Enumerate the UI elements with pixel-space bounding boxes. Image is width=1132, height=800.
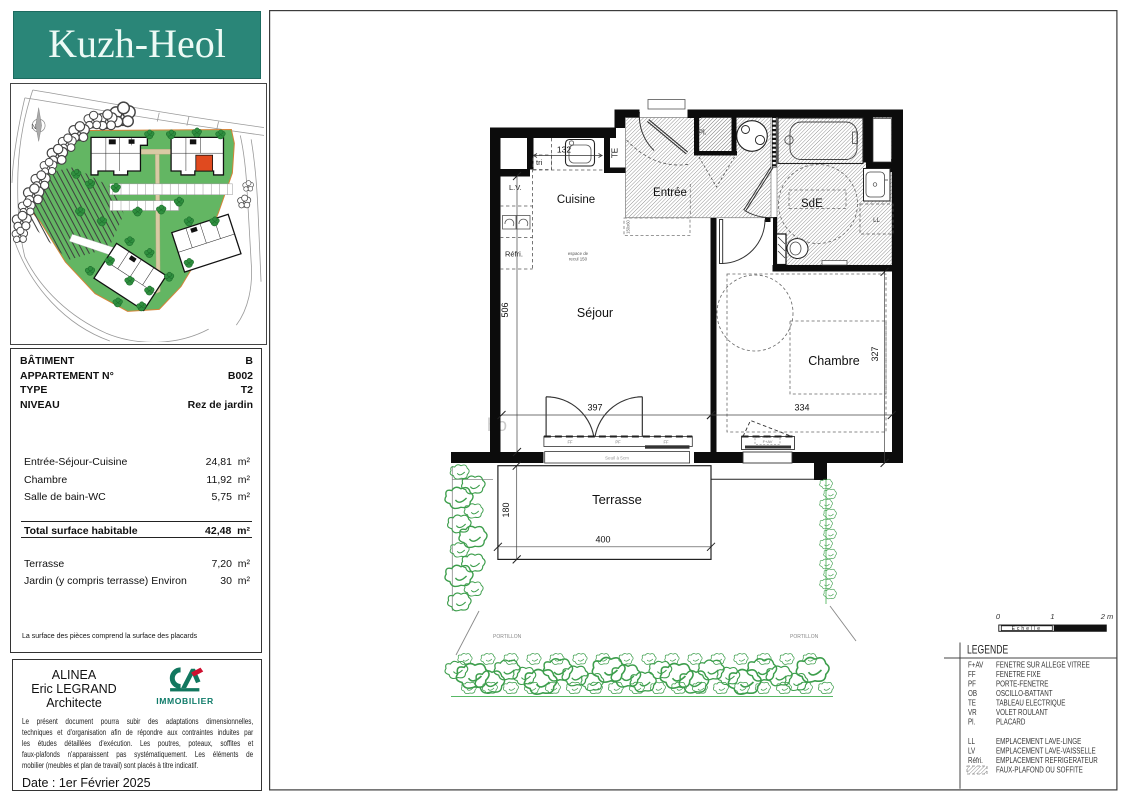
svg-text:tri: tri [536, 158, 543, 167]
svg-text:Chambre: Chambre [808, 354, 859, 368]
svg-text:OB: OB [968, 690, 977, 698]
svg-text:PORTE-FENETRE: PORTE-FENETRE [996, 681, 1049, 689]
svg-text:VOLET ROULANT: VOLET ROULANT [996, 709, 1048, 717]
svg-text:LL: LL [873, 218, 880, 224]
svg-text:espace de: espace de [568, 251, 589, 256]
svg-text:Pl.: Pl. [968, 719, 975, 727]
svg-text:PORTILLON: PORTILLON [790, 634, 819, 640]
svg-text:TABLEAU ELECTRIQUE: TABLEAU ELECTRIQUE [996, 700, 1066, 708]
svg-text:N: N [31, 122, 36, 131]
svg-text:FAUX-PLAFOND OU SOFFITE: FAUX-PLAFOND OU SOFFITE [996, 767, 1083, 775]
svg-text:PF: PF [968, 681, 977, 689]
svg-text:Séjour: Séjour [577, 306, 613, 320]
svg-text:Echelle: Echelle [1012, 626, 1042, 632]
svg-text:EMPLACEMENT LAVE-LINGE: EMPLACEMENT LAVE-LINGE [996, 738, 1081, 746]
svg-text:Pl.: Pl. [698, 128, 707, 137]
svg-text:TE: TE [611, 148, 620, 158]
svg-text:PORTILLON: PORTILLON [493, 634, 522, 640]
svg-text:F+AV: F+AV [763, 439, 773, 444]
svg-text:FENETRE SUR ALLEGE VITREE: FENETRE SUR ALLEGE VITREE [996, 662, 1090, 670]
svg-text:Réfri.: Réfri. [968, 757, 983, 765]
svg-text:150x60: 150x60 [626, 219, 631, 233]
svg-text:Réfri.: Réfri. [505, 250, 523, 259]
svg-text:SdE: SdE [801, 198, 823, 210]
svg-text:LV: LV [968, 748, 975, 756]
svg-text:L.V.: L.V. [509, 183, 522, 192]
svg-text:Terrasse: Terrasse [592, 492, 642, 507]
svg-text:132: 132 [557, 145, 571, 155]
svg-text:2 m: 2 m [1100, 612, 1114, 621]
svg-text:F+AV: F+AV [968, 662, 984, 670]
svg-text:506: 506 [500, 302, 510, 317]
svg-text:327: 327 [870, 346, 880, 361]
svg-text:Seuil à 5cm: Seuil à 5cm [605, 456, 629, 461]
svg-text:FF: FF [663, 439, 669, 444]
svg-text:180: 180 [501, 502, 511, 517]
svg-text:LEGENDE: LEGENDE [967, 644, 1008, 656]
svg-text:334: 334 [794, 403, 809, 413]
svg-text:Cuisine: Cuisine [557, 194, 595, 206]
svg-text:400: 400 [595, 535, 610, 545]
svg-text:recul 150: recul 150 [569, 257, 588, 262]
svg-text:EMPLACEMENT REFRIGERATEUR: EMPLACEMENT REFRIGERATEUR [996, 757, 1098, 765]
svg-text:FENETRE FIXE: FENETRE FIXE [996, 671, 1041, 679]
svg-text:FF: FF [968, 671, 976, 679]
svg-text:LL: LL [968, 738, 975, 746]
svg-text:1: 1 [1050, 612, 1054, 621]
svg-text:Entrée: Entrée [653, 187, 687, 199]
svg-text:OSCILLO-BATTANT: OSCILLO-BATTANT [996, 690, 1053, 698]
svg-text:TE: TE [968, 700, 976, 708]
svg-text:EMPLACEMENT LAVE-VAISSELLE: EMPLACEMENT LAVE-VAISSELLE [996, 748, 1096, 756]
svg-text:PF: PF [615, 439, 621, 444]
svg-text:397: 397 [587, 403, 602, 413]
svg-text:VR: VR [968, 709, 977, 717]
svg-text:0: 0 [996, 612, 1001, 621]
svg-text:FF: FF [567, 439, 573, 444]
svg-text:PLACARD: PLACARD [996, 719, 1025, 727]
